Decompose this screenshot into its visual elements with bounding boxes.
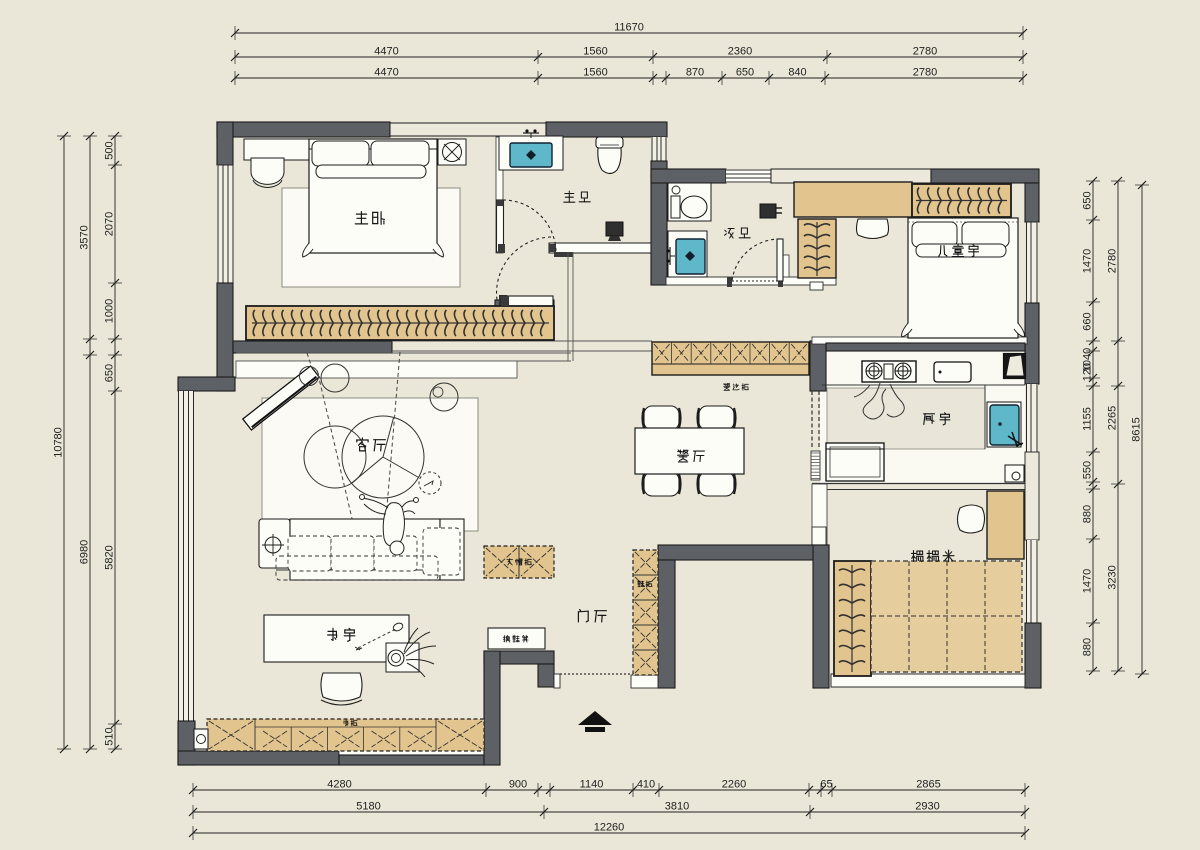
svg-text:2070: 2070 <box>104 212 116 236</box>
svg-text:8615: 8615 <box>1131 417 1143 441</box>
svg-text:2265: 2265 <box>1107 406 1119 430</box>
svg-text:2780: 2780 <box>913 46 937 58</box>
svg-text:5180: 5180 <box>356 801 380 813</box>
svg-text:1560: 1560 <box>583 67 607 79</box>
svg-text:120: 120 <box>1082 363 1094 381</box>
svg-text:2260: 2260 <box>722 779 746 791</box>
svg-text:650: 650 <box>1082 191 1094 209</box>
svg-text:1000: 1000 <box>104 299 116 323</box>
svg-text:2930: 2930 <box>915 801 939 813</box>
svg-text:5820: 5820 <box>104 545 116 569</box>
svg-text:650: 650 <box>104 364 116 382</box>
svg-text:4280: 4280 <box>327 779 351 791</box>
svg-text:410: 410 <box>637 779 655 791</box>
svg-text:65: 65 <box>820 779 832 791</box>
svg-text:12260: 12260 <box>594 822 625 834</box>
svg-text:10780: 10780 <box>53 427 65 458</box>
svg-text:1470: 1470 <box>1082 569 1094 593</box>
svg-text:660: 660 <box>1082 312 1094 330</box>
svg-text:550: 550 <box>1082 461 1094 479</box>
svg-text:3810: 3810 <box>665 801 689 813</box>
svg-text:6980: 6980 <box>79 540 91 564</box>
svg-text:650: 650 <box>736 67 754 79</box>
svg-text:3230: 3230 <box>1107 565 1119 589</box>
svg-text:2360: 2360 <box>728 46 752 58</box>
svg-text:1155: 1155 <box>1082 407 1094 431</box>
svg-text:1560: 1560 <box>583 46 607 58</box>
svg-text:510: 510 <box>104 727 116 745</box>
svg-text:840: 840 <box>788 67 806 79</box>
svg-text:880: 880 <box>1082 505 1094 523</box>
svg-text:900: 900 <box>509 779 527 791</box>
svg-text:11670: 11670 <box>614 22 644 34</box>
svg-text:880: 880 <box>1082 638 1094 656</box>
svg-text:870: 870 <box>686 67 704 79</box>
svg-text:500: 500 <box>104 141 116 159</box>
svg-text:3570: 3570 <box>79 225 91 249</box>
svg-text:2780: 2780 <box>1107 249 1119 273</box>
svg-text:1470: 1470 <box>1082 249 1094 273</box>
svg-text:1140: 1140 <box>580 779 604 791</box>
svg-text:4470: 4470 <box>374 67 398 79</box>
svg-text:2865: 2865 <box>916 779 940 791</box>
svg-text:2780: 2780 <box>913 67 937 79</box>
svg-text:4470: 4470 <box>374 46 398 58</box>
